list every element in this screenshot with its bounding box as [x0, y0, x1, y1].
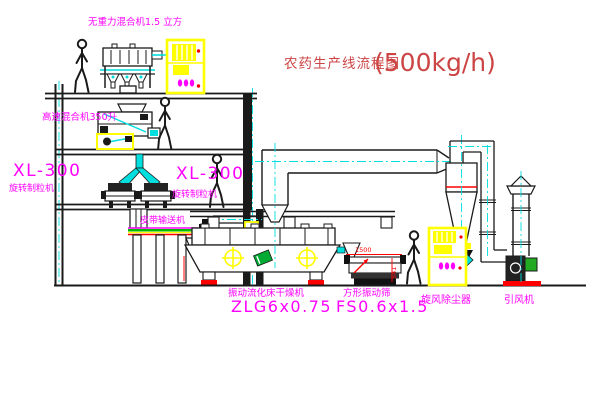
cad-drawing-canvas: 农药生产线流程图 (500kg/h) 无重力混合机1.5 立方 高速混合机350… [0, 0, 600, 403]
spring-mount-2 [284, 217, 295, 228]
floor-slab-top [45, 94, 257, 99]
cabinet-1-knobs [178, 79, 194, 86]
label-screen-model: FS0.6x1.5 [336, 297, 429, 316]
feed-pipe-vertical [136, 154, 143, 169]
label-high-speed-mixer: 高速混合机350升 [42, 111, 118, 123]
floor-slab-middle [55, 150, 252, 155]
dryer-upper-deck [192, 228, 335, 245]
spring-mount-3 [381, 217, 392, 228]
gravity-mixer-base [120, 86, 136, 93]
high-speed-mixer [97, 104, 160, 149]
cabinet-2-knobs [439, 262, 455, 269]
label-gravity-mixer: 无重力混合机1.5 立方 [88, 16, 182, 28]
dryer-discharge [337, 247, 345, 253]
granulator-section [101, 154, 175, 208]
label-granulator-left-name: 旋转制粒机 [9, 182, 54, 194]
control-cabinet-2 [429, 228, 466, 285]
dim-screen-height: 541 [390, 267, 398, 279]
cabinet-2-indicator-light [459, 235, 462, 238]
worker-figure-top-floor [75, 40, 89, 92]
spring-mount-1 [208, 217, 219, 228]
conveyor-leg-2 [156, 235, 164, 283]
cabinet-2-indicator-light-2 [458, 266, 461, 269]
label-granulator-mid-model: XL-300 [176, 164, 244, 184]
induced-draft-fan [503, 256, 541, 286]
cabinet-1-indicator-light [197, 49, 200, 52]
pesticide-line-flow-diagram: 农药生产线流程图 (500kg/h) 无重力混合机1.5 立方 高速混合机350… [0, 0, 600, 403]
gravity-mixer [100, 44, 166, 93]
cabinet-2-small-panel [434, 245, 452, 254]
high-speed-mixer-hopper [118, 104, 146, 112]
conveyor-deck [128, 228, 198, 235]
fan-base [503, 281, 541, 286]
conveyor-leg-1 [133, 235, 141, 283]
label-granulator-mid-name: 旋转制粒机 [172, 188, 217, 200]
fan-motor [525, 258, 537, 271]
conveyor-leg-3 [178, 235, 186, 283]
label-fan: 引风机 [504, 293, 534, 306]
fan-housing [506, 256, 525, 281]
worker-figure-second-floor [158, 98, 171, 149]
drawing-capacity: (500kg/h) [374, 48, 496, 77]
cabinet-1-small-panel [173, 65, 189, 75]
label-belt-conveyor: 皮带输送机 [140, 214, 185, 226]
right-wall-upper-column [243, 93, 252, 209]
high-speed-mixer-motor [103, 138, 111, 146]
cabinet-1-indicator-light-2 [197, 84, 200, 87]
screen-top-rail [345, 257, 405, 263]
dim-screen-length: 1500 [355, 246, 372, 254]
gravity-mixer-body [103, 48, 152, 66]
dryer-foot-pad-1 [201, 280, 217, 285]
label-cyclone: 旋风除尘器 [421, 293, 471, 306]
control-cabinet-1 [167, 40, 204, 93]
worker-figure-ground [407, 231, 421, 283]
dryer-foot-pad-2 [308, 280, 324, 285]
label-dryer-model: ZLG6x0.75 [231, 297, 332, 316]
label-granulator-left-model: XL-300 [13, 161, 81, 181]
